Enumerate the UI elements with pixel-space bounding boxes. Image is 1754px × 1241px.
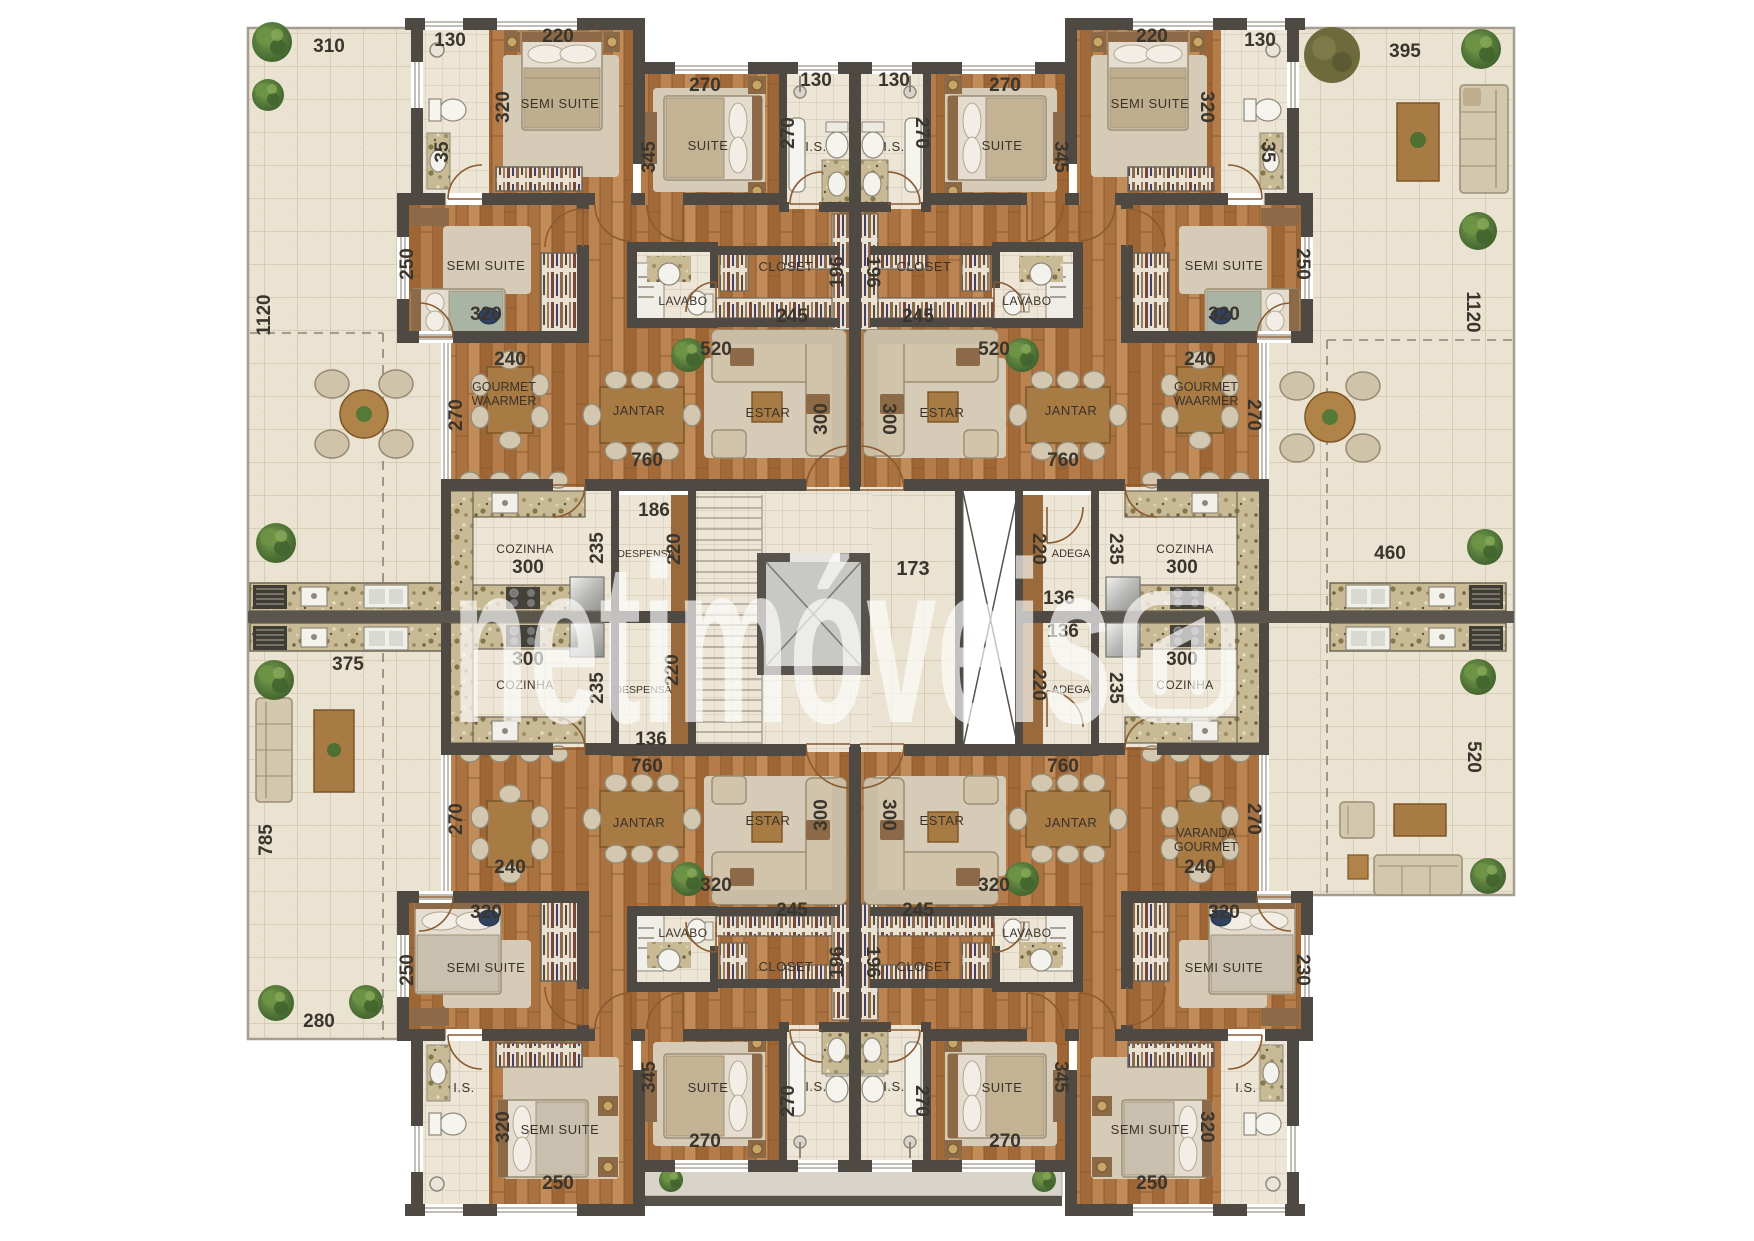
svg-text:SEMI SUITE: SEMI SUITE: [447, 258, 526, 273]
svg-text:LAVABO: LAVABO: [1002, 294, 1051, 308]
svg-text:COZINHA: COZINHA: [1156, 542, 1214, 556]
svg-text:196: 196: [827, 946, 848, 978]
svg-text:LAVABO: LAVABO: [658, 926, 707, 940]
svg-text:310: 310: [313, 36, 345, 57]
svg-text:SEMI SUITE: SEMI SUITE: [521, 96, 600, 111]
svg-text:300: 300: [811, 403, 832, 435]
svg-text:345: 345: [1050, 141, 1071, 173]
svg-text:220: 220: [542, 26, 574, 47]
svg-text:SUITE: SUITE: [982, 1080, 1023, 1095]
svg-text:JANTAR: JANTAR: [613, 403, 666, 418]
svg-text:SEMI SUITE: SEMI SUITE: [1185, 960, 1264, 975]
svg-text:270: 270: [446, 803, 467, 835]
svg-text:ESTAR: ESTAR: [746, 405, 791, 420]
svg-text:JANTAR: JANTAR: [613, 815, 666, 830]
svg-text:300: 300: [811, 799, 832, 831]
svg-text:270: 270: [1243, 399, 1264, 431]
svg-text:270: 270: [911, 1085, 932, 1117]
svg-text:JANTAR: JANTAR: [1045, 403, 1098, 418]
svg-text:SEMI SUITE: SEMI SUITE: [1185, 258, 1264, 273]
svg-text:SEMI SUITE: SEMI SUITE: [521, 1122, 600, 1137]
svg-text:I.S.: I.S.: [883, 139, 905, 154]
svg-text:GOURMET: GOURMET: [1174, 840, 1238, 854]
svg-text:345: 345: [639, 141, 660, 173]
svg-text:520: 520: [1463, 741, 1484, 773]
svg-text:130: 130: [800, 70, 832, 91]
svg-text:320: 320: [1208, 902, 1240, 923]
svg-text:245: 245: [776, 900, 808, 921]
svg-text:245: 245: [902, 306, 934, 327]
svg-text:270: 270: [689, 75, 721, 96]
svg-text:270: 270: [778, 117, 799, 149]
svg-text:320: 320: [470, 304, 502, 325]
svg-text:ESTAR: ESTAR: [920, 405, 965, 420]
svg-text:320: 320: [1196, 1111, 1217, 1143]
svg-text:320: 320: [493, 1111, 514, 1143]
svg-text:ESTAR: ESTAR: [746, 813, 791, 828]
svg-text:SEMI SUITE: SEMI SUITE: [1111, 96, 1190, 111]
svg-text:320: 320: [978, 875, 1010, 896]
svg-text:270: 270: [446, 399, 467, 431]
svg-text:JANTAR: JANTAR: [1045, 815, 1098, 830]
svg-text:395: 395: [1389, 41, 1421, 62]
svg-text:CLOSET: CLOSET: [758, 259, 813, 274]
svg-text:CLOSET: CLOSET: [896, 959, 951, 974]
svg-text:760: 760: [631, 450, 663, 471]
svg-text:netimóveis: netimóveis: [452, 515, 1113, 772]
svg-text:I.S.: I.S.: [805, 1079, 827, 1094]
svg-text:520: 520: [978, 339, 1010, 360]
svg-text:240: 240: [1184, 857, 1216, 878]
svg-text:130: 130: [878, 70, 910, 91]
svg-text:270: 270: [989, 75, 1021, 96]
svg-text:300: 300: [1166, 557, 1198, 578]
svg-text:320: 320: [493, 91, 514, 123]
svg-text:SUITE: SUITE: [688, 138, 729, 153]
svg-text:VARANDA: VARANDA: [1176, 826, 1236, 840]
svg-text:270: 270: [989, 1131, 1021, 1152]
svg-text:300: 300: [878, 799, 899, 831]
svg-text:CLOSET: CLOSET: [758, 959, 813, 974]
svg-text:I.S.: I.S.: [883, 1079, 905, 1094]
svg-text:270: 270: [911, 117, 932, 149]
svg-text:LAVABO: LAVABO: [658, 294, 707, 308]
svg-text:196: 196: [862, 946, 883, 978]
svg-text:1120: 1120: [1462, 291, 1483, 332]
svg-text:130: 130: [434, 30, 466, 51]
svg-text:196: 196: [827, 256, 848, 288]
svg-text:240: 240: [494, 349, 526, 370]
svg-text:I.S.: I.S.: [453, 1080, 475, 1095]
svg-text:SEMI SUITE: SEMI SUITE: [1111, 1122, 1190, 1137]
svg-text:220: 220: [1136, 26, 1168, 47]
svg-text:250: 250: [397, 248, 418, 280]
svg-text:375: 375: [332, 654, 364, 675]
svg-text:SUITE: SUITE: [982, 138, 1023, 153]
svg-text:35: 35: [1257, 141, 1278, 163]
svg-text:345: 345: [1050, 1061, 1071, 1093]
svg-text:GOURMET: GOURMET: [472, 380, 536, 394]
svg-text:785: 785: [256, 824, 277, 856]
svg-text:250: 250: [397, 954, 418, 986]
svg-text:760: 760: [1047, 450, 1079, 471]
svg-text:35: 35: [432, 141, 453, 163]
svg-text:I.S.: I.S.: [805, 139, 827, 154]
svg-text:320: 320: [700, 875, 732, 896]
svg-text:520: 520: [700, 339, 732, 360]
svg-text:WAARMER: WAARMER: [472, 394, 537, 408]
svg-text:460: 460: [1374, 543, 1406, 564]
svg-text:130: 130: [1244, 30, 1276, 51]
svg-text:CLOSET: CLOSET: [896, 259, 951, 274]
svg-text:240: 240: [494, 857, 526, 878]
svg-text:245: 245: [776, 306, 808, 327]
svg-text:230: 230: [1292, 954, 1313, 986]
svg-text:345: 345: [639, 1061, 660, 1093]
svg-text:250: 250: [1136, 1173, 1168, 1194]
svg-text:GOURMET: GOURMET: [1174, 380, 1238, 394]
svg-text:270: 270: [778, 1085, 799, 1117]
svg-text:270: 270: [1243, 803, 1264, 835]
svg-text:270: 270: [689, 1131, 721, 1152]
svg-text:LAVABO: LAVABO: [1002, 926, 1051, 940]
svg-text:ESTAR: ESTAR: [920, 813, 965, 828]
svg-text:196: 196: [862, 256, 883, 288]
svg-text:300: 300: [878, 403, 899, 435]
svg-text:250: 250: [1292, 248, 1313, 280]
svg-text:SEMI SUITE: SEMI SUITE: [447, 960, 526, 975]
svg-text:320: 320: [470, 902, 502, 923]
svg-text:320: 320: [1208, 304, 1240, 325]
svg-text:280: 280: [303, 1011, 335, 1032]
svg-text:1120: 1120: [254, 294, 275, 335]
svg-text:240: 240: [1184, 349, 1216, 370]
svg-text:320: 320: [1196, 91, 1217, 123]
svg-text:245: 245: [902, 900, 934, 921]
svg-text:WAARMER: WAARMER: [1174, 394, 1239, 408]
svg-text:I.S.: I.S.: [1235, 1080, 1257, 1095]
svg-text:SUITE: SUITE: [688, 1080, 729, 1095]
svg-text:250: 250: [542, 1173, 574, 1194]
